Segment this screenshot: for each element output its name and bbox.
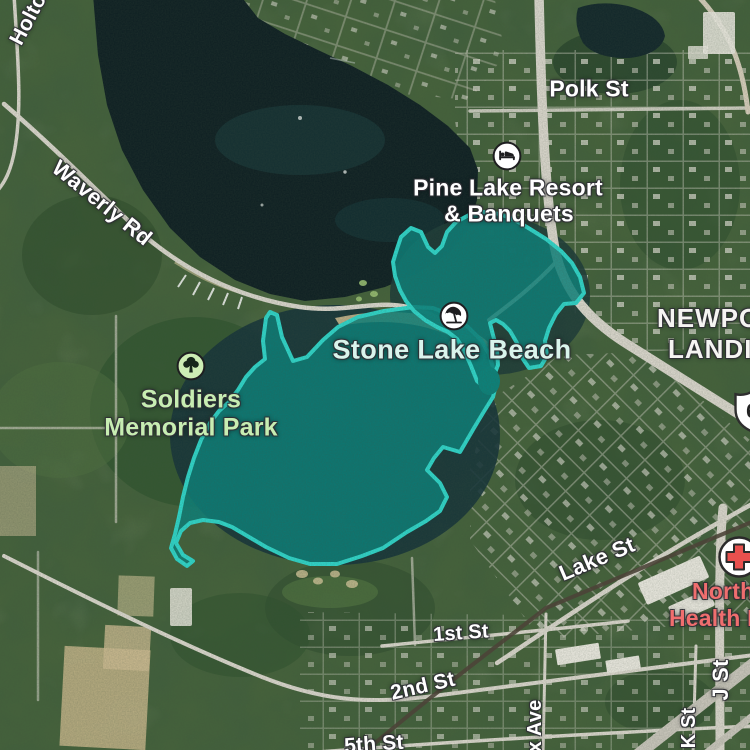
bed-icon [492,141,522,171]
route-shield: 6 [733,389,750,433]
street-label-k-st: K St [679,708,701,749]
beach-umbrella-icon [439,301,469,331]
beach-label[interactable]: Stone Lake Beach [333,335,572,364]
hospital-label-line2[interactable]: Health La [669,606,750,631]
resort-marker[interactable] [492,141,522,171]
park-label-line1[interactable]: Soldiers [141,387,241,414]
park-marker[interactable] [176,351,206,381]
street-label-5th-st: 5th St [344,732,405,750]
street-label-j-st: J St [709,659,733,700]
newport-landing-label-line2: LANDING [668,335,750,363]
hospital-label-line1[interactable]: Northwest [692,579,750,604]
street-label-ave: x Ave [525,700,547,750]
newport-landing-label-line1: NEWPORT [657,304,750,332]
resort-label-line1[interactable]: Pine Lake Resort [413,176,603,201]
tree-icon [176,351,206,381]
street-label-polk-st: Polk St [549,77,628,102]
route-shield-number: 6 [746,400,750,423]
beach-marker[interactable] [439,301,469,331]
resort-label-line2[interactable]: & Banquets [444,202,574,227]
satellite-grain [0,0,750,750]
street-label-1st-st: 1st St [432,621,489,646]
satellite-basemap [0,0,750,750]
hospital-cross-icon [717,535,750,579]
map-canvas[interactable]: 6 Holton Waverly Rd Polk St Pine Lake Re… [0,0,750,750]
park-label-line2[interactable]: Memorial Park [104,415,278,442]
hospital-marker[interactable] [717,535,750,579]
